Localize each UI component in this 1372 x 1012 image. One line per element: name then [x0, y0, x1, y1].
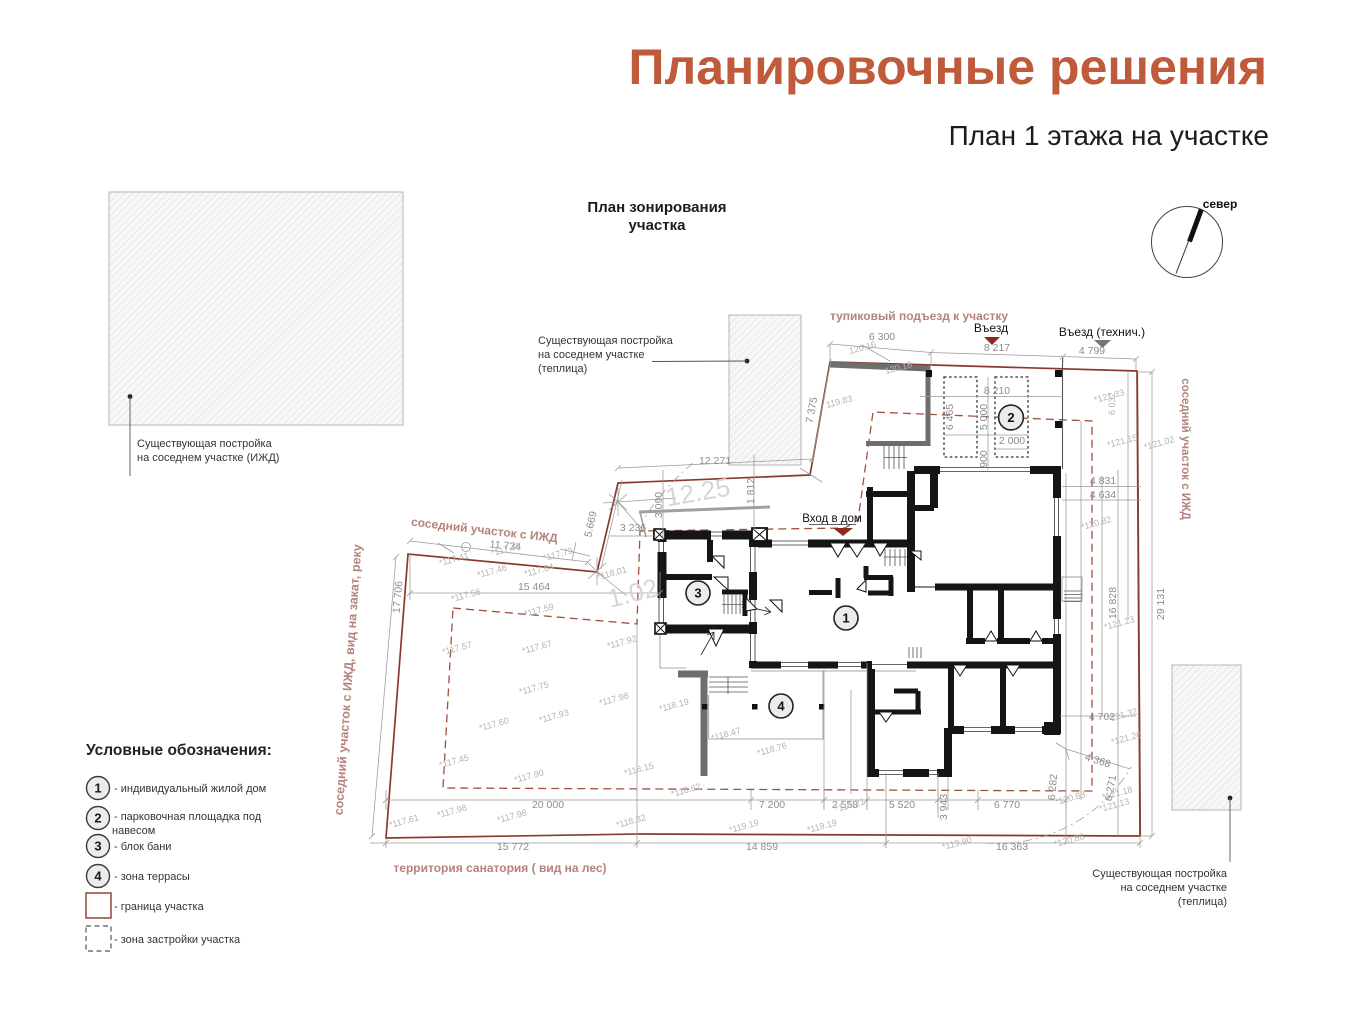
svg-text:- индивидуальный жилой дом: - индивидуальный жилой дом — [114, 783, 266, 795]
svg-text:6 032: 6 032 — [1107, 392, 1117, 415]
svg-text:на соседнем участке (ИЖД): на соседнем участке (ИЖД) — [137, 452, 279, 464]
svg-text:12 271: 12 271 — [699, 455, 731, 467]
svg-text:7 200: 7 200 — [759, 799, 785, 811]
svg-text:3 236: 3 236 — [620, 522, 646, 534]
svg-text:Существующая постройка: Существующая постройка — [538, 335, 674, 347]
svg-text:4 634: 4 634 — [1090, 489, 1116, 501]
svg-text:4 799: 4 799 — [1079, 345, 1105, 357]
svg-text:6 770: 6 770 — [994, 799, 1020, 811]
svg-text:4: 4 — [777, 699, 785, 714]
svg-text:на соседнем участке: на соседнем участке — [1120, 882, 1227, 894]
svg-text:Вход в дом: Вход в дом — [802, 513, 862, 525]
svg-text:Въезд (технич.): Въезд (технич.) — [1059, 325, 1145, 339]
svg-text:29 131: 29 131 — [1155, 588, 1167, 620]
svg-text:- блок бани: - блок бани — [114, 841, 171, 853]
svg-text:14 859: 14 859 — [746, 841, 778, 853]
svg-text:План зонирования: План зонирования — [587, 199, 726, 216]
svg-text:3 090: 3 090 — [653, 492, 665, 518]
svg-text:2: 2 — [1007, 410, 1014, 425]
svg-text:План 1 этажа на участке: План 1 этажа на участке — [949, 120, 1269, 151]
svg-text:(теплица): (теплица) — [538, 363, 587, 375]
svg-text:15 464: 15 464 — [518, 581, 550, 593]
svg-text:3: 3 — [694, 586, 701, 601]
svg-text:4 831: 4 831 — [1090, 475, 1116, 487]
svg-text:3 943: 3 943 — [938, 794, 950, 820]
svg-text:2 000: 2 000 — [999, 435, 1025, 447]
svg-text:навесом: навесом — [112, 825, 155, 837]
svg-text:16 828: 16 828 — [1107, 587, 1119, 619]
svg-text:1: 1 — [842, 611, 849, 626]
svg-text:1 812: 1 812 — [745, 478, 757, 504]
svg-text:север: север — [1203, 197, 1238, 211]
svg-text:- зона террасы: - зона террасы — [114, 871, 190, 883]
svg-text:900: 900 — [978, 450, 990, 468]
svg-text:- парковочная площадка под: - парковочная площадка под — [114, 811, 262, 823]
svg-text:соседний участок с ИЖД: соседний участок с ИЖД — [1179, 378, 1191, 519]
svg-text:5 000: 5 000 — [978, 404, 990, 430]
svg-text:Въезд: Въезд — [974, 321, 1008, 335]
svg-text:1: 1 — [94, 781, 101, 796]
svg-text:4: 4 — [94, 869, 102, 884]
svg-text:территория санатория ( вид на: территория санатория ( вид на лес) — [393, 861, 606, 875]
svg-text:8 210: 8 210 — [984, 385, 1010, 397]
svg-text:8 217: 8 217 — [984, 342, 1010, 354]
svg-text:16 363: 16 363 — [996, 841, 1028, 853]
svg-text:6 465: 6 465 — [944, 404, 956, 430]
svg-text:Условные обозначения:: Условные обозначения: — [86, 742, 272, 759]
svg-text:Существующая постройка: Существующая постройка — [1092, 868, 1228, 880]
svg-text:5 520: 5 520 — [889, 799, 915, 811]
svg-text:3: 3 — [94, 839, 101, 854]
svg-text:участка: участка — [629, 217, 687, 234]
svg-text:20 000: 20 000 — [532, 799, 564, 811]
svg-text:на соседнем участке: на соседнем участке — [538, 349, 645, 361]
svg-text:- граница участка: - граница участка — [114, 901, 205, 913]
svg-text:- зона застройки участка: - зона застройки участка — [114, 934, 241, 946]
svg-text:Существующая постройка: Существующая постройка — [137, 438, 273, 450]
svg-text:2: 2 — [94, 811, 101, 826]
svg-text:Планировочные решения: Планировочные решения — [629, 39, 1267, 95]
svg-text:(теплица): (теплица) — [1178, 896, 1227, 908]
svg-text:15 772: 15 772 — [497, 841, 529, 853]
